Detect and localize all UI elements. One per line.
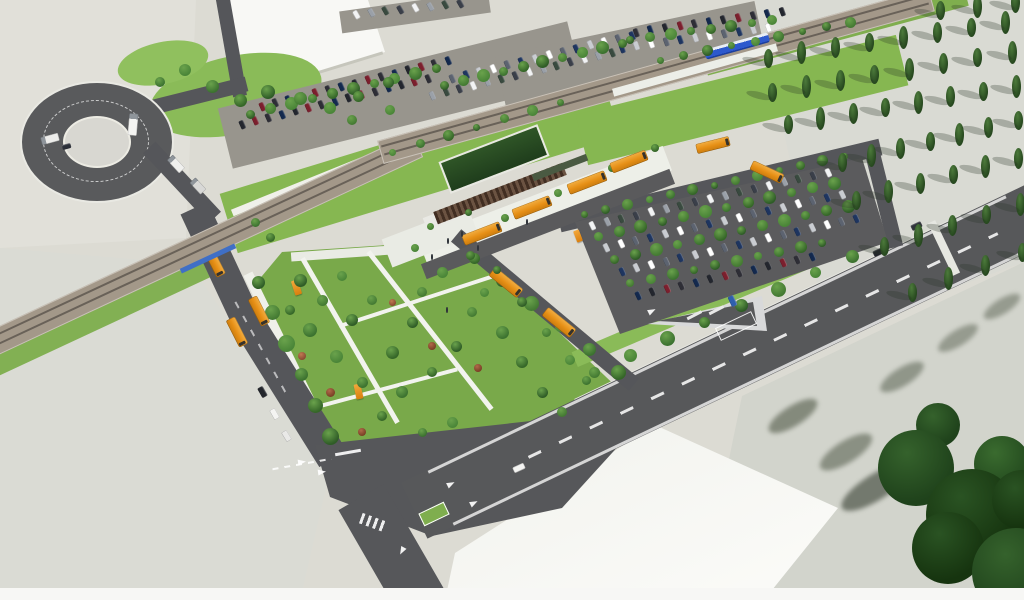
station-trees <box>266 233 275 242</box>
parking-tree-row <box>706 24 716 34</box>
parking-tree-row <box>667 268 679 280</box>
park-trees <box>417 287 427 297</box>
poplar-row <box>880 237 889 256</box>
roundabout-area-trees <box>353 91 364 102</box>
parking-tree-row <box>818 239 826 247</box>
slope-tree-row <box>443 130 454 141</box>
parking-tree-row <box>690 266 698 274</box>
poplar-row <box>948 215 957 236</box>
busway-tree-row <box>583 343 596 356</box>
roundabout-area-trees <box>347 115 357 125</box>
parking-tree-row <box>694 234 705 245</box>
parking-tree-row <box>630 249 641 260</box>
parking-tree-row <box>614 226 625 237</box>
avenue-tree-row <box>771 282 786 297</box>
parking-tree-row <box>787 188 796 197</box>
slope-tree-row <box>473 124 480 131</box>
park-trees <box>537 387 548 398</box>
park-trees <box>330 350 343 363</box>
poplar-row <box>884 180 893 203</box>
poplar-row <box>914 224 923 247</box>
slope-tree-row <box>527 105 538 116</box>
roundabout-island <box>63 116 131 168</box>
park-trees <box>516 356 528 368</box>
park-trees <box>437 267 448 278</box>
station-trees <box>465 209 472 216</box>
parking-tree-row <box>596 41 609 54</box>
avenue-tree-row <box>846 250 859 263</box>
station-trees <box>251 218 260 227</box>
parking-tree-row <box>658 217 667 226</box>
park-trees <box>565 355 575 365</box>
rail-hedge-row <box>751 37 760 46</box>
poplar-row <box>981 255 990 276</box>
park-trees <box>557 407 567 417</box>
poplar-row <box>1001 11 1010 34</box>
poplar-row <box>1018 243 1024 262</box>
station-trees <box>427 223 434 230</box>
parking-tree-row <box>610 255 619 264</box>
park-trees <box>407 317 418 328</box>
poplar-row <box>933 22 942 43</box>
slope-tree-row <box>557 99 564 106</box>
rail-hedge-row <box>657 57 664 64</box>
parking-tree-row <box>308 94 317 103</box>
park-trees <box>582 376 591 385</box>
park-shrubs <box>428 342 436 350</box>
roundabout-area-trees <box>155 77 165 87</box>
rail-hedge-row <box>822 22 831 31</box>
poplar-row <box>1014 148 1023 169</box>
poplar-row <box>979 82 988 101</box>
roundabout-area-trees <box>206 80 219 93</box>
poplar-row <box>1012 75 1021 98</box>
parking-tree-row <box>737 226 746 235</box>
station-trees <box>651 144 659 152</box>
roundabout-area-trees <box>383 77 394 88</box>
park-trees <box>346 314 358 326</box>
parking-tree-row <box>801 211 810 220</box>
poplar-row <box>1011 0 1020 13</box>
poplar-row <box>982 205 991 224</box>
rail-hedge-row <box>845 17 856 28</box>
poplar-row <box>764 49 773 68</box>
parking-tree-row <box>763 191 776 204</box>
poplar-row <box>802 75 811 98</box>
park-trees <box>427 367 437 377</box>
park-trees <box>317 295 328 306</box>
poplar-row <box>949 165 958 184</box>
roundabout-area-trees <box>261 85 275 99</box>
busway-tree-row <box>611 365 626 380</box>
park-trees <box>542 328 551 337</box>
poplar-row <box>784 115 793 134</box>
rail-hedge-row <box>773 31 784 42</box>
parking-tree-row <box>650 243 663 256</box>
park-trees <box>496 326 509 339</box>
poplar-row <box>905 58 914 81</box>
slope-tree-row <box>416 139 425 148</box>
slope-tree-row <box>389 149 396 156</box>
park-trees <box>386 346 399 359</box>
park-trees <box>447 417 458 428</box>
parking-tree-row <box>626 279 634 287</box>
parking-tree-row <box>622 199 633 210</box>
parking-tree-row <box>577 47 588 58</box>
rail-hedge-row <box>702 45 713 56</box>
parking-tree-row <box>558 53 567 62</box>
parking-tree-row <box>722 203 731 212</box>
park-shrubs <box>326 388 335 397</box>
road-tree-row <box>295 368 308 381</box>
roundabout-area-trees <box>294 92 307 105</box>
roundabout-area-trees <box>324 102 336 114</box>
parking-tree-row <box>581 211 588 218</box>
parking-tree-row <box>646 274 656 284</box>
park-trees <box>337 271 347 281</box>
road-tree-row <box>252 276 265 289</box>
parking-tree-row <box>246 110 255 119</box>
poplar-row <box>1016 193 1024 216</box>
parking-tree-row <box>499 67 508 76</box>
rail-hedge-row <box>799 28 806 35</box>
truck <box>128 113 139 136</box>
site-plan-rendering <box>0 0 1024 600</box>
park-trees <box>467 307 477 317</box>
park-trees <box>377 411 387 421</box>
poplar-row <box>1008 41 1017 64</box>
parking-tree-row <box>409 67 422 80</box>
park-trees <box>367 295 377 305</box>
park-trees <box>396 386 408 398</box>
poplar-row <box>899 26 908 49</box>
parking-tree-row <box>626 36 634 44</box>
parking-tree-row <box>601 205 610 214</box>
poplar-row <box>1014 111 1023 130</box>
road-tree-row <box>322 428 339 445</box>
parking-tree-row <box>731 255 743 267</box>
park-trees <box>357 377 368 388</box>
park-shrubs <box>298 352 306 360</box>
slope-tree-row <box>500 114 509 123</box>
park-trees <box>285 305 295 315</box>
parking-tree-row <box>370 79 379 88</box>
parking-tree-row <box>767 15 777 25</box>
park-trees <box>451 341 462 352</box>
station-trees <box>501 214 509 222</box>
poplar-row <box>939 53 948 74</box>
parking-tree-row <box>665 28 677 40</box>
parking-tree-row <box>828 177 841 190</box>
park-shrubs <box>358 428 366 436</box>
park-trees <box>294 274 307 287</box>
park-trees <box>480 288 489 297</box>
park-shrubs <box>474 364 482 372</box>
parking-tree-row <box>731 176 740 185</box>
lane-arrow <box>298 458 307 465</box>
avenue-tree-row <box>699 317 710 328</box>
poplar-row <box>768 83 777 102</box>
parking-tree-row <box>711 182 718 189</box>
park-trees <box>466 251 475 260</box>
station-trees <box>554 189 562 197</box>
parking-tree-row <box>646 196 653 203</box>
park-shrubs <box>389 299 396 306</box>
poplar-row <box>981 155 990 178</box>
parking-tree-row <box>748 19 756 27</box>
rail-hedge-row <box>728 42 735 49</box>
roundabout-area-trees <box>234 94 247 107</box>
roundabout-area-trees <box>179 64 191 76</box>
poplar-row <box>849 103 858 124</box>
parking-tree-row <box>440 81 449 90</box>
poplar-row <box>967 18 976 37</box>
parking-tree-row <box>594 232 603 241</box>
park-trees <box>303 323 317 337</box>
park-trees <box>493 266 501 274</box>
avenue-tree-row <box>589 367 600 378</box>
roundabout-area-trees <box>385 105 395 115</box>
parking-tree-row <box>432 64 441 73</box>
avenue-tree-row <box>810 267 821 278</box>
parking-tree-row <box>518 61 529 72</box>
parking-tree-row <box>743 197 754 208</box>
image-bottom-margin <box>0 588 1024 600</box>
poplar-row <box>908 283 917 302</box>
lane-arrow <box>318 468 327 475</box>
poplar-row <box>914 91 923 114</box>
station-trees <box>411 244 419 252</box>
poplar-row <box>936 1 945 20</box>
parking-tree-row <box>778 214 791 227</box>
road-tree-row <box>308 398 323 413</box>
park-trees <box>418 428 427 437</box>
poplar-row <box>852 191 861 210</box>
rail-hedge-row <box>679 51 688 60</box>
park-trees <box>517 297 527 307</box>
